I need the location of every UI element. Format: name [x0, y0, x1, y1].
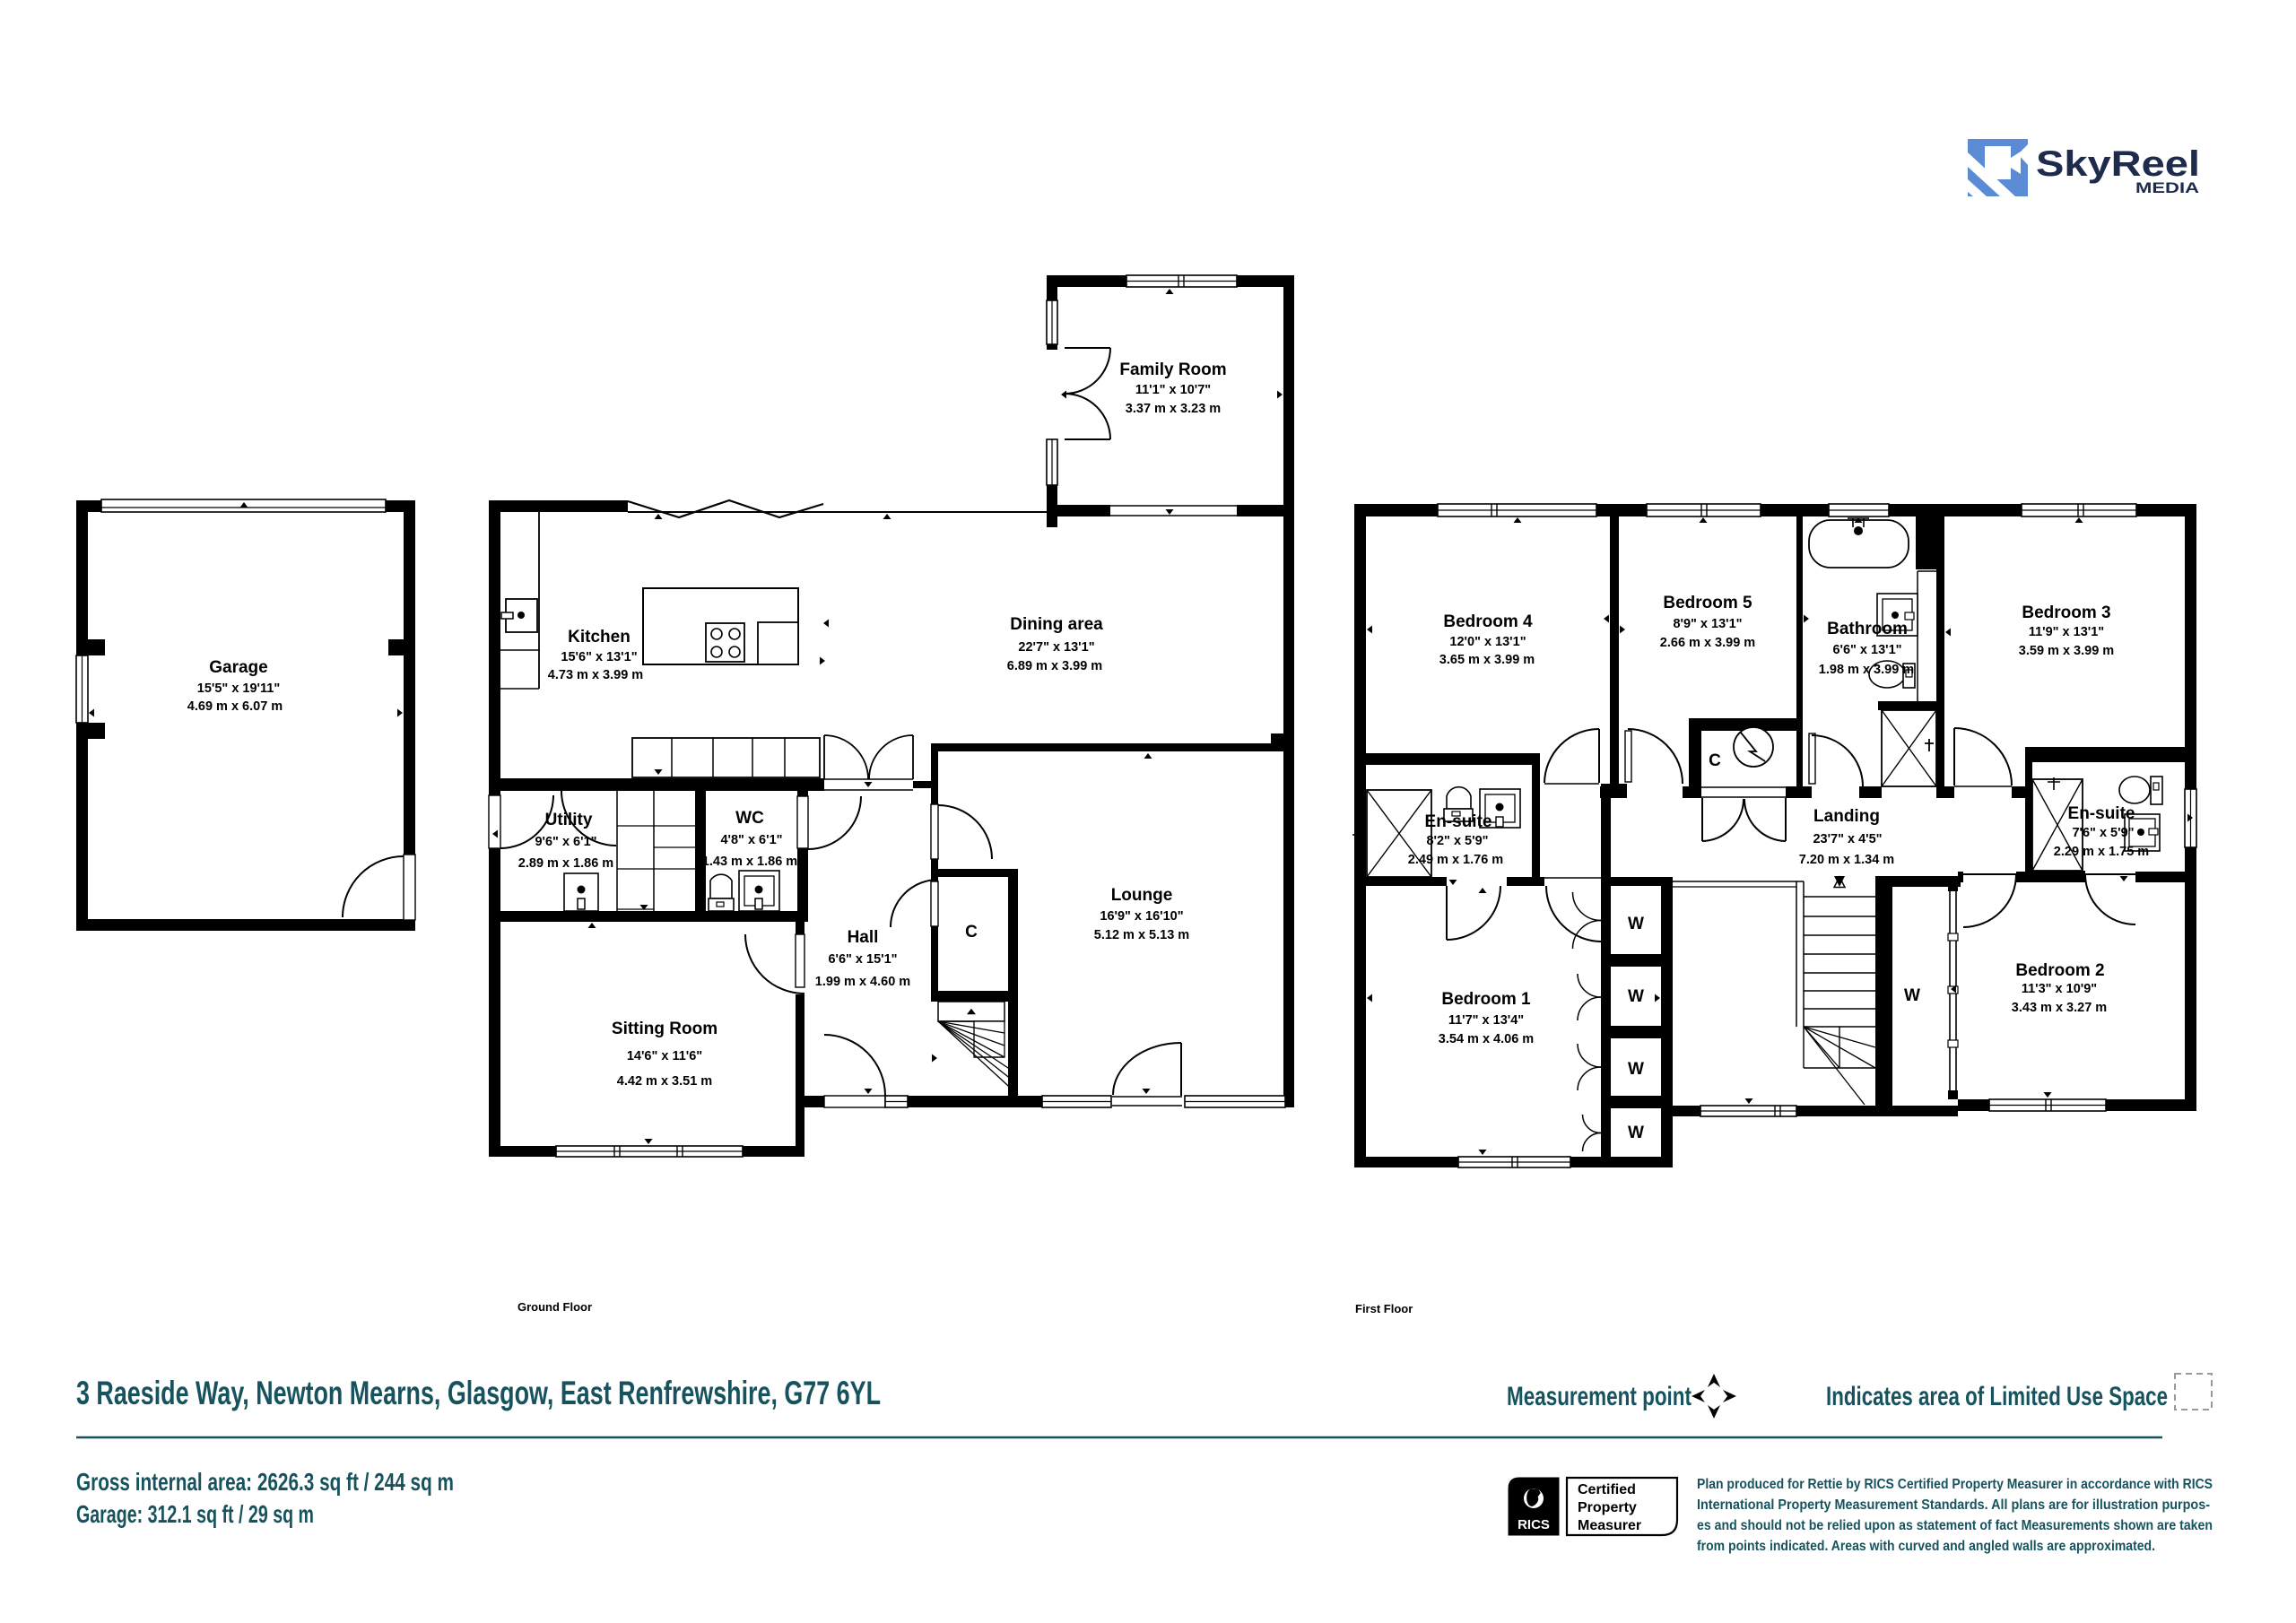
svg-text:1.99 m x 4.60 m: 1.99 m x 4.60 m	[815, 975, 910, 989]
svg-text:First Floor: First Floor	[1355, 1302, 1413, 1315]
svg-text:8'2" x 5'9": 8'2" x 5'9"	[1426, 834, 1488, 848]
svg-text:3.43 m x 3.27 m: 3.43 m x 3.27 m	[2012, 1001, 2107, 1015]
svg-text:Measurement point: Measurement point	[1507, 1382, 1692, 1411]
svg-text:8'9" x 13'1": 8'9" x 13'1"	[1673, 617, 1742, 631]
svg-text:2.29 m x 1.75 m: 2.29 m x 1.75 m	[2054, 845, 2149, 859]
svg-text:Gross internal area: 2626.3 sq: Gross internal area: 2626.3 sq ft / 244 …	[76, 1468, 454, 1496]
svg-text:Bedroom 4: Bedroom 4	[1443, 612, 1533, 631]
svg-text:W: W	[1628, 987, 1644, 1006]
svg-text:3.54 m x 4.06 m: 3.54 m x 4.06 m	[1439, 1032, 1534, 1046]
svg-text:Bedroom 1: Bedroom 1	[1441, 990, 1531, 1009]
svg-text:3.65 m x 3.99 m: 3.65 m x 3.99 m	[1439, 653, 1535, 667]
svg-text:2.66 m x 3.99 m: 2.66 m x 3.99 m	[1660, 636, 1755, 650]
svg-text:2.89 m x 1.86 m: 2.89 m x 1.86 m	[518, 856, 613, 871]
svg-text:Kitchen: Kitchen	[568, 628, 631, 647]
svg-text:RICS: RICS	[1518, 1517, 1550, 1532]
svg-text:9'6" x 6'1": 9'6" x 6'1"	[535, 835, 596, 849]
svg-text:Bathroom: Bathroom	[1827, 620, 1908, 638]
svg-text:Ground Floor: Ground Floor	[517, 1300, 592, 1314]
svg-text:Certified: Certified	[1578, 1482, 1636, 1497]
svg-text:C: C	[1709, 751, 1721, 770]
svg-text:W: W	[1904, 986, 1920, 1005]
svg-text:12'0" x 13'1": 12'0" x 13'1"	[1449, 635, 1526, 649]
svg-text:Landing: Landing	[1813, 807, 1880, 826]
svg-text:Measurer: Measurer	[1578, 1518, 1641, 1533]
svg-text:14'6" x 11'6": 14'6" x 11'6"	[627, 1049, 702, 1063]
svg-text:16'9" x 16'10": 16'9" x 16'10"	[1100, 909, 1183, 924]
svg-text:11'1" x 10'7": 11'1" x 10'7"	[1135, 383, 1211, 397]
svg-text:W: W	[1628, 1060, 1644, 1079]
svg-text:15'6" x 13'1": 15'6" x 13'1"	[561, 650, 637, 664]
svg-text:22'7" x 13'1": 22'7" x 13'1"	[1018, 640, 1094, 655]
svg-text:W: W	[1628, 1124, 1644, 1142]
svg-text:Bedroom 2: Bedroom 2	[2015, 961, 2104, 980]
svg-text:Utility: Utility	[545, 811, 593, 829]
svg-text:es and should not be relied up: es and should not be relied upon as stat…	[1697, 1518, 2213, 1533]
svg-text:6.89 m x 3.99 m: 6.89 m x 3.99 m	[1007, 659, 1102, 673]
svg-text:Lounge: Lounge	[1111, 886, 1173, 905]
svg-text:11'9" x 13'1": 11'9" x 13'1"	[2029, 625, 2104, 639]
svg-text:from points indicated. Areas w: from points indicated. Areas with curved…	[1697, 1539, 2155, 1554]
svg-text:2.49 m x 1.76 m: 2.49 m x 1.76 m	[1408, 853, 1503, 867]
svg-text:Dining area: Dining area	[1010, 615, 1103, 634]
svg-text:C: C	[965, 923, 978, 942]
svg-text:7'6" x 5'9": 7'6" x 5'9"	[2072, 826, 2134, 840]
svg-text:Garage: Garage	[209, 658, 267, 677]
svg-text:6'6" x 15'1": 6'6" x 15'1"	[828, 952, 897, 967]
svg-text:6'6" x 13'1": 6'6" x 13'1"	[1832, 643, 1901, 657]
svg-text:WC: WC	[735, 809, 764, 828]
svg-text:MEDIA: MEDIA	[2135, 179, 2199, 196]
svg-text:SkyReel: SkyReel	[2036, 144, 2200, 184]
svg-text:International Property Measur: International Property Measurement Stand…	[1697, 1497, 2210, 1513]
svg-text:15'5" x 19'11": 15'5" x 19'11"	[197, 681, 280, 696]
svg-text:4'8" x 6'1": 4'8" x 6'1"	[720, 833, 782, 847]
svg-text:3 Raeside Way, Newton Mearns,: 3 Raeside Way, Newton Mearns, Glasgow, E…	[76, 1375, 881, 1411]
svg-text:En-suite: En-suite	[1425, 812, 1492, 831]
svg-text:1.43 m x 1.86 m: 1.43 m x 1.86 m	[702, 855, 797, 869]
svg-text:Indicates area of Limited Use: Indicates area of Limited Use Space	[1826, 1382, 2168, 1411]
svg-text:23'7" x 4'5": 23'7" x 4'5"	[1813, 832, 1882, 846]
svg-text:5.12 m x 5.13 m: 5.12 m x 5.13 m	[1094, 928, 1189, 942]
svg-text:1.98 m x 3.99 m: 1.98 m x 3.99 m	[1819, 663, 1914, 677]
svg-text:Sitting Room: Sitting Room	[612, 1020, 717, 1038]
svg-text:Family Room: Family Room	[1119, 360, 1226, 379]
svg-text:4.73 m x 3.99 m: 4.73 m x 3.99 m	[548, 668, 643, 682]
svg-text:11'3" x 10'9": 11'3" x 10'9"	[2022, 982, 2097, 996]
svg-text:Hall: Hall	[848, 928, 879, 947]
svg-text:Garage: 312.1 sq ft / 29 sq m: Garage: 312.1 sq ft / 29 sq m	[76, 1500, 314, 1528]
svg-text:En-suite: En-suite	[2068, 804, 2135, 823]
svg-text:Plan produced for Rettie by RI: Plan produced for Rettie by RICS Certifi…	[1697, 1477, 2213, 1492]
svg-text:4.42 m x 3.51 m: 4.42 m x 3.51 m	[617, 1074, 712, 1089]
svg-text:Bedroom 3: Bedroom 3	[2022, 603, 2110, 622]
svg-text:4.69 m x 6.07 m: 4.69 m x 6.07 m	[187, 699, 283, 714]
svg-text:11'7" x 13'4": 11'7" x 13'4"	[1448, 1013, 1524, 1028]
svg-text:3.59 m x 3.99 m: 3.59 m x 3.99 m	[2019, 644, 2114, 658]
svg-text:Property: Property	[1578, 1500, 1637, 1515]
svg-text:3.37 m x 3.23 m: 3.37 m x 3.23 m	[1126, 402, 1221, 416]
svg-text:7.20 m x 1.34 m: 7.20 m x 1.34 m	[1799, 853, 1894, 867]
svg-text:Bedroom 5: Bedroom 5	[1663, 594, 1752, 612]
svg-text:W: W	[1628, 915, 1644, 933]
